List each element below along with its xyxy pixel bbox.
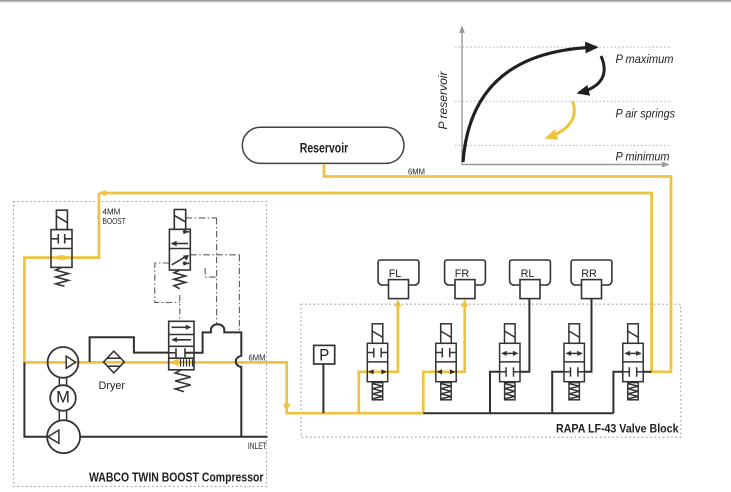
- svg-text:RR: RR: [581, 268, 597, 280]
- svg-text:BOOST: BOOST: [103, 216, 126, 226]
- svg-text:4MM: 4MM: [103, 207, 121, 217]
- svg-text:P maximum: P maximum: [616, 52, 674, 66]
- svg-text:RL: RL: [521, 268, 535, 280]
- svg-text:RAPA LF-43 Valve Block: RAPA LF-43 Valve Block: [556, 422, 679, 436]
- svg-text:FR: FR: [455, 268, 470, 280]
- svg-text:P minimum: P minimum: [616, 150, 670, 164]
- svg-text:WABCO TWIN BOOST Compressor: WABCO TWIN BOOST Compressor: [89, 470, 264, 484]
- svg-text:6MM: 6MM: [408, 167, 425, 177]
- svg-text:FL: FL: [389, 268, 402, 280]
- svg-text:Dryer: Dryer: [99, 380, 126, 392]
- svg-text:Reservoir: Reservoir: [300, 141, 349, 156]
- svg-text:INLET: INLET: [248, 441, 267, 452]
- svg-text:6MM: 6MM: [249, 352, 266, 362]
- svg-text:M: M: [56, 389, 70, 407]
- svg-text:P: P: [319, 346, 329, 364]
- svg-text:P air springs: P air springs: [616, 107, 676, 121]
- svg-text:P reservoir: P reservoir: [436, 70, 450, 129]
